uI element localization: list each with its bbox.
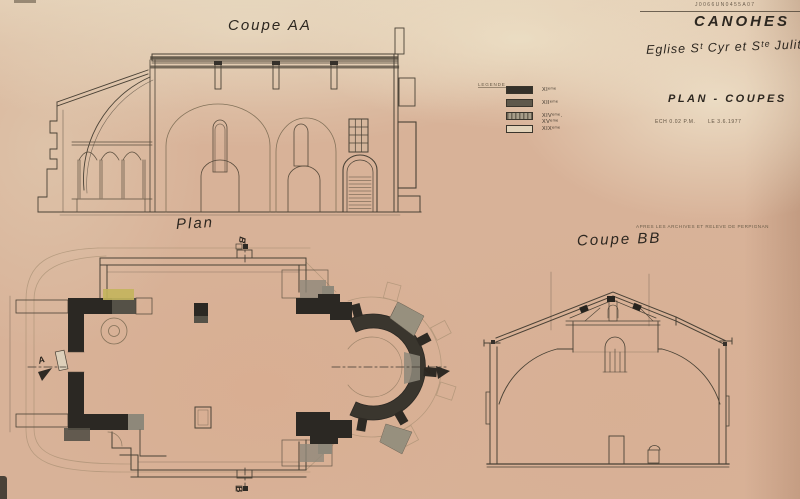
section-marker-b-south: B	[234, 485, 245, 493]
section-bb-drawing	[484, 272, 732, 467]
drawing-canvas	[0, 0, 800, 499]
scan-edge-mark-top	[14, 0, 36, 3]
legend-label-19th: XIXᵉᵐᵉ	[542, 126, 561, 132]
inventory-stamp: J0066UN0455A07	[695, 2, 755, 8]
label-section-bb: Coupe BB	[577, 230, 662, 250]
legend-swatch-12th	[506, 99, 533, 107]
scale-note: ECH 0.02 P.M.	[655, 119, 696, 125]
section-aa-drawing	[38, 28, 421, 215]
date-note: LE 3.6.1977	[708, 119, 742, 125]
page-title: CANOHES	[694, 13, 790, 30]
scan-edge-mark-bottom	[0, 476, 7, 499]
legend-swatch-11th	[506, 86, 533, 94]
stamp-rule	[640, 11, 800, 12]
credit-note: APRES LES ARCHIVES ET RELEVE DE PERPIGNA…	[636, 224, 769, 229]
legend-label-12th: XIIᵉᵐᵉ	[542, 100, 558, 106]
legend-label-11th: XIᵉᵐᵉ	[542, 87, 556, 93]
section-marker-b-north: B	[237, 236, 248, 244]
sheet-title: PLAN - COUPES	[668, 93, 787, 105]
plan-drawing	[10, 240, 456, 492]
legend-label-14-15th: XIVᵉᵐᵉ. XVᵉᵐᵉ	[542, 113, 562, 125]
scanned-architectural-drawing: { "document": { "stamp": "J0066UN0455A07…	[0, 0, 800, 499]
legend-swatch-14-15th	[506, 112, 533, 120]
label-plan: Plan	[176, 214, 215, 233]
label-section-aa: Coupe AA	[228, 17, 312, 34]
legend-title: LEGENDE	[478, 82, 506, 88]
legend-swatch-19th	[506, 125, 533, 133]
